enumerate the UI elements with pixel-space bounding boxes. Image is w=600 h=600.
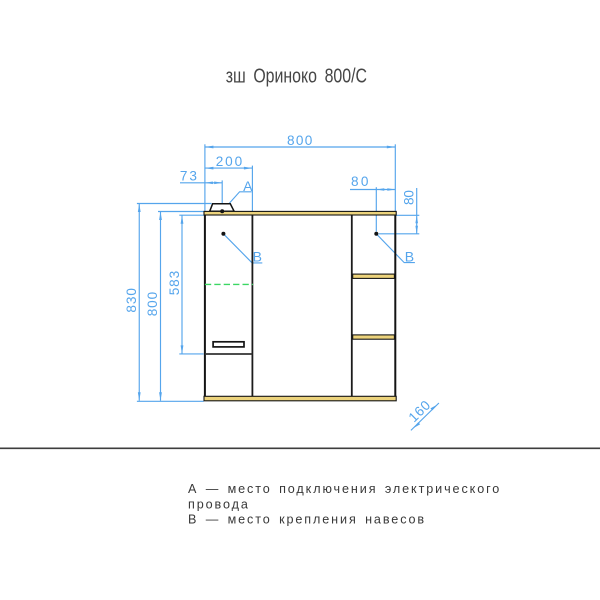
svg-text:73: 73 [180, 168, 197, 183]
svg-text:В: В [405, 248, 414, 264]
svg-text:830: 830 [124, 288, 139, 313]
svg-text:зш Ориноко 800/С: зш Ориноко 800/С [226, 66, 367, 88]
svg-text:80: 80 [351, 174, 369, 189]
svg-text:В: В [253, 249, 262, 265]
svg-text:А — место подключения электрич: А — место подключения электрического [188, 482, 501, 496]
svg-text:160: 160 [406, 397, 434, 425]
svg-text:800: 800 [287, 133, 313, 148]
svg-text:583: 583 [167, 271, 182, 296]
svg-text:200: 200 [216, 154, 243, 169]
svg-text:А: А [243, 178, 253, 194]
svg-text:80: 80 [401, 190, 416, 205]
svg-text:провода: провода [188, 497, 250, 511]
svg-text:800: 800 [145, 291, 160, 316]
svg-text:В — место крепления навесов: В — место крепления навесов [188, 513, 426, 527]
